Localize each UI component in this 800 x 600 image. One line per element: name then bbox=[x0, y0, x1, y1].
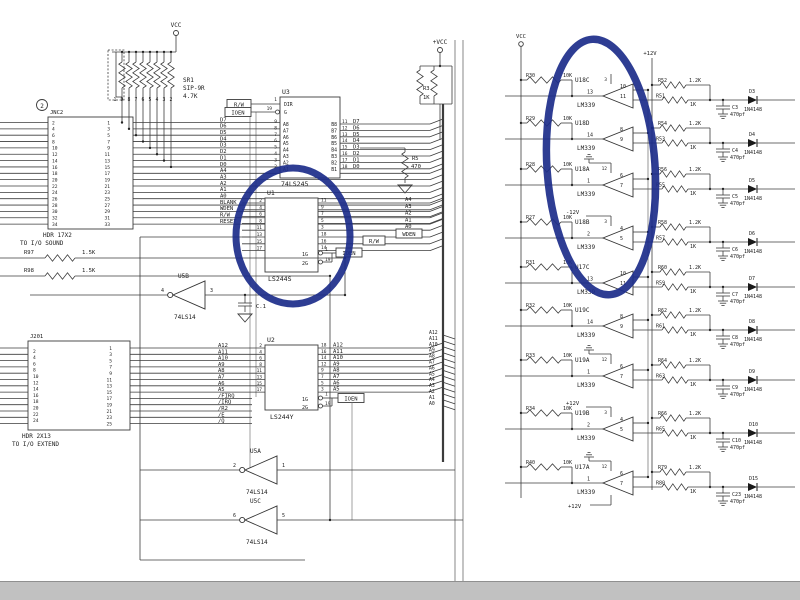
connector-note: HDR 17X2 bbox=[43, 232, 72, 239]
pin-number: 2 bbox=[233, 463, 236, 469]
pin-number: 3 bbox=[109, 352, 112, 358]
resistor-value: 10K bbox=[563, 353, 572, 359]
inverter-u5a: U5A74LS1421 bbox=[233, 448, 285, 496]
schematic-drawing: JNC221D743D665D587D4109D31211D21413D1161… bbox=[0, 0, 800, 600]
pin-number: 5 bbox=[109, 358, 112, 364]
pin-number: 5 bbox=[149, 97, 152, 103]
signal-label: /R2 bbox=[218, 406, 228, 412]
pin-name: A7 bbox=[283, 128, 289, 134]
ic-part-label: LM339 bbox=[577, 244, 595, 251]
pin-name: A6 bbox=[283, 135, 289, 141]
signal-label: D2 bbox=[220, 149, 227, 155]
signal-label: D4 bbox=[220, 136, 227, 142]
resistor-value: 1K bbox=[690, 382, 696, 388]
cap-value: 470pf bbox=[730, 499, 745, 505]
pin-number: 13 bbox=[342, 132, 348, 138]
signal-label: A11 bbox=[218, 349, 228, 355]
signal-label: A11 bbox=[429, 336, 438, 342]
pin-name: A8 bbox=[283, 122, 289, 128]
signal-label: R/W bbox=[220, 213, 231, 219]
pin-number: 12 bbox=[321, 361, 327, 367]
pin-number: 5 bbox=[321, 218, 324, 224]
ic-ref: U5B bbox=[178, 273, 189, 280]
pin-name: B5 bbox=[331, 141, 337, 147]
pin-number: 9 bbox=[121, 97, 124, 103]
pin-number: 23 bbox=[104, 190, 110, 196]
pin-number: 16 bbox=[33, 393, 39, 399]
pin-number: 9 bbox=[321, 368, 324, 374]
resistor-value: 1K bbox=[690, 435, 696, 441]
cap-value: 470pf bbox=[730, 112, 745, 118]
pin-number: 27 bbox=[104, 203, 110, 209]
pin-number: 30 bbox=[52, 209, 58, 215]
signal-label: A4 bbox=[220, 168, 227, 174]
signal-label: A6 bbox=[218, 381, 225, 387]
pin-number: 16 bbox=[321, 238, 327, 244]
pin-number: 17 bbox=[104, 171, 110, 177]
pin-number: 3 bbox=[107, 127, 110, 133]
ic-ref: U18A bbox=[575, 166, 590, 173]
pin-number: 18 bbox=[52, 171, 58, 177]
resistor-ref: R80 bbox=[656, 481, 665, 487]
pin-name: 1G bbox=[302, 397, 308, 403]
pin-number: 32 bbox=[52, 216, 58, 222]
signal-label: D5 bbox=[220, 130, 227, 136]
pin-number: 19 bbox=[267, 106, 273, 112]
connector-note: HDR 2X13 bbox=[22, 433, 51, 440]
diode-part: 1N4148 bbox=[744, 249, 762, 255]
bias-label: +12V bbox=[566, 401, 580, 407]
cap-value: 470pf bbox=[730, 201, 745, 207]
pin-number: 13 bbox=[587, 90, 593, 96]
ic-part-label: 74LS14 bbox=[174, 314, 196, 321]
pin-number: 1 bbox=[325, 247, 328, 253]
pin-number: 11 bbox=[321, 198, 327, 204]
resistor-ref: R31 bbox=[526, 260, 535, 266]
resistor-value: 1.2K bbox=[689, 308, 701, 314]
comparator-stage: R3310K1U19ALM3396712R641.2KR631KC9470pfD… bbox=[505, 346, 795, 399]
signal-label: A7 bbox=[429, 360, 435, 366]
bias-label: +12V bbox=[568, 504, 582, 510]
signal-label: A9 bbox=[218, 362, 225, 368]
diode-ref: D5 bbox=[749, 178, 755, 184]
vcc-label: VCC bbox=[171, 22, 182, 29]
ic-ref: U19B bbox=[575, 410, 590, 417]
ref-label: R97 bbox=[24, 250, 34, 256]
pin-number: 9 bbox=[620, 137, 623, 143]
pin-number: 5 bbox=[620, 236, 623, 242]
cap-ref: C5 bbox=[732, 194, 738, 200]
pin-number: 6 bbox=[274, 138, 277, 144]
signal-label: A6 bbox=[333, 380, 340, 386]
resistor-value: 1.2K bbox=[689, 121, 701, 127]
pin-number: 4 bbox=[259, 205, 262, 211]
pin-number: 26 bbox=[52, 197, 58, 203]
pin-number: 2 bbox=[52, 120, 55, 126]
rail-label: +12V bbox=[643, 51, 657, 57]
resistor-value: 10K bbox=[563, 460, 572, 466]
signal-label: A4 bbox=[405, 197, 412, 203]
value-label: 1K bbox=[423, 95, 430, 101]
resistor-value: 10K bbox=[563, 116, 572, 122]
pin-number: 11 bbox=[104, 152, 110, 158]
pin-name: B6 bbox=[331, 135, 337, 141]
pin-number: 8 bbox=[128, 97, 131, 103]
pin-number: 13 bbox=[257, 232, 263, 238]
pin-number: 18 bbox=[33, 399, 39, 405]
pin-number: 1 bbox=[109, 346, 112, 352]
jnc2-connector: JNC221D743D665D587D4109D31211D21413D1161… bbox=[0, 100, 443, 248]
ic-ref: U18C bbox=[575, 77, 590, 84]
j201-connector: A12A11A10A9A8A7A6A5/FIRQ/IRQ/R2/E/QJ2012… bbox=[0, 334, 265, 448]
signal-label: A5 bbox=[429, 371, 435, 377]
resistor-ref: R63 bbox=[656, 374, 665, 380]
signal-label: /Q bbox=[218, 419, 225, 425]
signal-label: D3 bbox=[353, 145, 360, 151]
resistor-ref: R29 bbox=[526, 116, 535, 122]
pin-number: 7 bbox=[620, 481, 623, 487]
ic-part-label: LM339 bbox=[577, 191, 595, 198]
signal-label: D7 bbox=[220, 117, 227, 123]
ic-ref: U5C bbox=[250, 498, 261, 505]
bias-label: -12V bbox=[566, 210, 580, 216]
pin-number: 6 bbox=[259, 356, 262, 362]
pin-number: 8 bbox=[620, 314, 623, 320]
pin-name: DIR bbox=[284, 102, 293, 108]
pin-number: 7 bbox=[135, 97, 138, 103]
signal-label: A10 bbox=[429, 342, 438, 348]
pin-number: 16 bbox=[52, 165, 58, 171]
pin-number: 2 bbox=[259, 198, 262, 204]
ic-ref: U19C bbox=[575, 307, 590, 314]
pin-number: 11 bbox=[106, 377, 112, 383]
pin-number: 7 bbox=[107, 139, 110, 145]
resistor-ref: R27 bbox=[526, 215, 535, 221]
pin-number: 15 bbox=[257, 239, 263, 245]
signal-label: A4 bbox=[429, 377, 435, 383]
signal-label: A7 bbox=[218, 375, 225, 381]
pin-number: 10 bbox=[33, 374, 39, 380]
value-label: 1.5K bbox=[82, 268, 96, 274]
pin-number: 17 bbox=[257, 387, 263, 393]
pin-number: 7 bbox=[620, 374, 623, 380]
pin-name: A4 bbox=[283, 148, 289, 154]
signal-label: A8 bbox=[218, 368, 225, 374]
pin-number: 12 bbox=[33, 380, 39, 386]
pin-number: 4 bbox=[33, 355, 36, 361]
pin-number: 2 bbox=[587, 232, 590, 238]
ref-label: R5 bbox=[412, 156, 419, 162]
ic-part-label: 74LS14 bbox=[246, 539, 268, 546]
pin-number: 4 bbox=[259, 349, 262, 355]
pin-number: 4 bbox=[620, 226, 623, 232]
pin-number: 6 bbox=[233, 513, 236, 519]
ref-label: SR1 bbox=[183, 77, 194, 84]
connector-note: TO I/O EXTEND bbox=[12, 441, 59, 448]
cap-value: 470pf bbox=[730, 299, 745, 305]
signal-label: D7 bbox=[353, 119, 360, 125]
pin-number: 4 bbox=[274, 151, 277, 157]
signal-label: A8 bbox=[333, 368, 340, 374]
pin-name: B4 bbox=[331, 148, 337, 154]
pin-number: 15 bbox=[104, 165, 110, 171]
pin-number: 12 bbox=[602, 357, 608, 363]
signal-label: A7 bbox=[333, 374, 340, 380]
pin-number: 7 bbox=[321, 211, 324, 217]
pin-number: 3 bbox=[210, 288, 213, 294]
diode-part: 1N4148 bbox=[744, 440, 762, 446]
pin-number: 5 bbox=[620, 427, 623, 433]
pin-number: 22 bbox=[33, 412, 39, 418]
resistor-value: 1.2K bbox=[689, 167, 701, 173]
pin-number: 13 bbox=[106, 384, 112, 390]
ic-part-label: LM339 bbox=[577, 102, 595, 109]
comparator-stage: R4010K1U17ALM3396712+12VR791.2KR801KC234… bbox=[505, 453, 795, 510]
pin-number: 20 bbox=[33, 406, 39, 412]
pin-number: 13 bbox=[104, 158, 110, 164]
cap-ref: C9 bbox=[732, 385, 738, 391]
pin-name: 2G bbox=[302, 405, 308, 411]
pin-number: 3 bbox=[604, 219, 607, 225]
pin-number: 5 bbox=[274, 145, 277, 151]
signal-label: A1 bbox=[429, 395, 435, 401]
diode-part: 1N4148 bbox=[744, 294, 762, 300]
pin-number: 17 bbox=[342, 157, 348, 163]
pin-number: 8 bbox=[620, 127, 623, 133]
cap-value: 470pf bbox=[730, 342, 745, 348]
resistor-value: 1K bbox=[690, 489, 696, 495]
resistor-ref: R53 bbox=[656, 137, 665, 143]
pin-number: 6 bbox=[52, 133, 55, 139]
resistor-ref: R28 bbox=[526, 162, 535, 168]
signal-label: A9 bbox=[429, 348, 435, 354]
pin-number: 22 bbox=[52, 184, 58, 190]
pin-number: 14 bbox=[342, 138, 348, 144]
pin-number: 8 bbox=[33, 368, 36, 374]
pin-number: 18 bbox=[321, 343, 327, 349]
signal-label: A2 bbox=[405, 211, 412, 217]
ic-part-label: LM339 bbox=[577, 382, 595, 389]
value-label: 4.7K bbox=[183, 93, 198, 100]
pin-number: 11 bbox=[342, 119, 348, 125]
connector-note: TO I/O SOUND bbox=[20, 240, 64, 247]
pin-number: 1 bbox=[114, 97, 117, 103]
pin-number: 8 bbox=[259, 218, 262, 224]
resistor-ref: R51 bbox=[656, 94, 665, 100]
signal-label: D6 bbox=[220, 124, 227, 130]
resistor-ref: R54 bbox=[658, 121, 667, 127]
resistor-ref: R79 bbox=[658, 465, 667, 471]
pin-number: 4 bbox=[161, 288, 164, 294]
pin-number: 7 bbox=[274, 132, 277, 138]
pin-number: 6 bbox=[259, 212, 262, 218]
resistor-value: 1K bbox=[690, 289, 696, 295]
resistor-ref: R59 bbox=[656, 281, 665, 287]
signal-label: A12 bbox=[218, 343, 228, 349]
diode-ref: D6 bbox=[749, 231, 755, 237]
signal-label: A0 bbox=[220, 194, 227, 200]
pin-number: 9 bbox=[274, 119, 277, 125]
pin-number: 11 bbox=[257, 368, 263, 374]
pin-number: 3 bbox=[604, 410, 607, 416]
pin-number: 4 bbox=[620, 417, 623, 423]
resistor-value: 1K bbox=[690, 191, 696, 197]
cap-ref: C7 bbox=[732, 292, 738, 298]
diode-part: 1N4148 bbox=[744, 150, 762, 156]
resistor-ref: R58 bbox=[658, 220, 667, 226]
value-label: 470 bbox=[411, 164, 421, 170]
resistor-ref: R64 bbox=[658, 358, 667, 364]
signal-label: D6 bbox=[353, 125, 360, 131]
pin-number: 12 bbox=[602, 464, 608, 470]
pin-number: 23 bbox=[106, 415, 112, 421]
resistor-ref: R57 bbox=[656, 236, 665, 242]
pin-name: 2G bbox=[302, 261, 308, 267]
pin-number: 14 bbox=[587, 133, 593, 139]
ic-part-label: 74LS245 bbox=[281, 180, 308, 188]
pin-number: 6 bbox=[620, 471, 623, 477]
pin-number: 16 bbox=[342, 151, 348, 157]
pin-number: 3 bbox=[604, 77, 607, 83]
signal-label: /IRQ bbox=[218, 400, 231, 406]
pin-number: 2 bbox=[170, 97, 173, 103]
signal-label: A0 bbox=[429, 401, 435, 407]
signal-label: IOEN bbox=[344, 397, 357, 403]
signal-label: A11 bbox=[333, 349, 343, 355]
signal-label: A3 bbox=[405, 204, 412, 210]
pin-number: 3 bbox=[321, 225, 324, 231]
pin-name: A5 bbox=[283, 141, 289, 147]
resistor-r3: +VCCR31K bbox=[417, 39, 452, 140]
resistor-ref: R34 bbox=[526, 406, 535, 412]
signal-label: A5 bbox=[333, 387, 340, 393]
signal-label: A12 bbox=[429, 330, 438, 336]
resistor-value: 1.2K bbox=[689, 465, 701, 471]
vcc-label: VCC bbox=[516, 34, 526, 40]
pin-number: 5 bbox=[321, 380, 324, 386]
pin-name: B7 bbox=[331, 128, 337, 134]
signal-label: A1 bbox=[220, 187, 227, 193]
pin-number: 19 bbox=[106, 403, 112, 409]
pin-number: 18 bbox=[321, 232, 327, 238]
diode-part: 1N4148 bbox=[744, 337, 762, 343]
connector-ref: J201 bbox=[30, 334, 43, 340]
ic-ref: U19A bbox=[575, 357, 590, 364]
resistor-value: 10K bbox=[563, 73, 572, 79]
resistor-value: 1.2K bbox=[689, 265, 701, 271]
signal-label: A2 bbox=[429, 389, 435, 395]
pin-number: 21 bbox=[104, 184, 110, 190]
pin-name: B1 bbox=[331, 167, 337, 173]
pin-number: 8 bbox=[274, 125, 277, 131]
pin-number: 5 bbox=[282, 513, 285, 519]
pin-number: 6 bbox=[620, 173, 623, 179]
signal-label: A9 bbox=[333, 361, 340, 367]
signal-label: /E bbox=[218, 412, 225, 418]
pin-name: 1G bbox=[302, 252, 308, 258]
ic-part-label: LM339 bbox=[577, 489, 595, 496]
pin-number: 25 bbox=[106, 421, 112, 427]
signal-label: A3 bbox=[220, 174, 227, 180]
signal-label: D4 bbox=[353, 138, 360, 144]
resistor-ref: R62 bbox=[658, 308, 667, 314]
resistor-ref: R40 bbox=[526, 460, 535, 466]
pin-number: 7 bbox=[620, 183, 623, 189]
diode-ref: D4 bbox=[749, 132, 755, 138]
cap-c1: C.1 bbox=[238, 294, 266, 322]
u2-ic: 18A12216A11414A10612A989A8117A7135A6153A… bbox=[257, 336, 443, 520]
pin-name: G bbox=[284, 110, 287, 116]
resistor-value: 10K bbox=[563, 303, 572, 309]
pin-number: 10 bbox=[52, 146, 58, 152]
pin-number: 3 bbox=[163, 97, 166, 103]
signal-label: A5 bbox=[218, 387, 225, 393]
value-label: 1.5K bbox=[82, 250, 96, 256]
ic-part-label: LM339 bbox=[577, 435, 595, 442]
signal-label: /FIRQ bbox=[218, 393, 235, 399]
pin-number: 13 bbox=[257, 375, 263, 381]
ic-ref: U17A bbox=[575, 464, 590, 471]
pin-number: 1 bbox=[587, 179, 590, 185]
signal-label: D1 bbox=[353, 157, 360, 163]
diode-part: 1N4148 bbox=[744, 494, 762, 500]
ic-ref: U1 bbox=[267, 189, 275, 197]
resistor-ref: R32 bbox=[526, 303, 535, 309]
pin-number: 17 bbox=[257, 246, 263, 252]
signal-label: A12 bbox=[333, 343, 343, 349]
signal-label: D3 bbox=[220, 143, 227, 149]
pin-number: 28 bbox=[52, 203, 58, 209]
resistor-ref: R65 bbox=[656, 427, 665, 433]
comparator-stage: R3410K2U19BLM339453+12VR661.2KR651KC1047… bbox=[505, 401, 795, 451]
resistor-ref: R61 bbox=[656, 324, 665, 330]
signal-label: IOEN bbox=[231, 111, 244, 117]
resistor-ref: R52 bbox=[658, 78, 667, 84]
ic-part-label: LS244Y bbox=[270, 413, 294, 421]
pin-number: 7 bbox=[321, 374, 324, 380]
pin-number: 14 bbox=[52, 158, 58, 164]
cap-ref: C6 bbox=[732, 247, 738, 253]
pin-number: 2 bbox=[259, 343, 262, 349]
resistor-value: 1K bbox=[690, 145, 696, 151]
pin-number: 9 bbox=[321, 204, 324, 210]
pin-number: 4 bbox=[156, 97, 159, 103]
pin-number: 34 bbox=[52, 222, 58, 228]
pin-number: 9 bbox=[107, 146, 110, 152]
pin-number: 1 bbox=[325, 392, 328, 398]
value-label: SIP-9R bbox=[183, 85, 205, 92]
signal-label: WDEN bbox=[402, 232, 415, 238]
pin-number: 2 bbox=[33, 349, 36, 355]
ic-ref: U5A bbox=[250, 448, 261, 455]
cap-ref: C8 bbox=[732, 335, 738, 341]
pin-number: 10 bbox=[620, 84, 626, 90]
resistor-ref: R60 bbox=[658, 265, 667, 271]
pin-number: 1 bbox=[587, 370, 590, 376]
resistor-value: 1.2K bbox=[689, 411, 701, 417]
left-schematic-sheet: JNC221D743D665D587D4109D31211D21413D1161… bbox=[0, 22, 463, 585]
pin-number: 14 bbox=[587, 320, 593, 326]
diode-ref: D10 bbox=[749, 422, 758, 428]
signal-label: A1 bbox=[405, 217, 412, 223]
pin-number: 5 bbox=[107, 133, 110, 139]
pin-number: 6 bbox=[620, 364, 623, 370]
pin-number: 20 bbox=[52, 177, 58, 183]
cap-value: 470pf bbox=[730, 254, 745, 260]
pin-number: 29 bbox=[104, 209, 110, 215]
schematic-page: JNC221D743D665D587D4109D31211D21413D1161… bbox=[0, 0, 800, 600]
resistor-value: 1K bbox=[690, 332, 696, 338]
